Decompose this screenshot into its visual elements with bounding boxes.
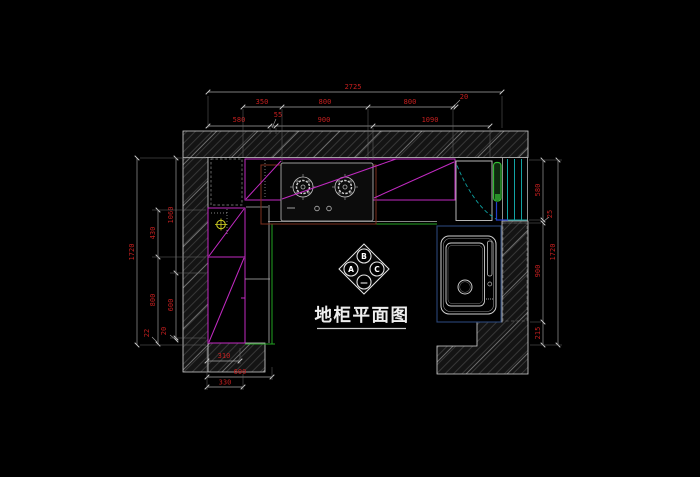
sink-rim-inner: [444, 239, 494, 312]
dim-text: 1720: [549, 244, 557, 261]
index-letter-right: C: [374, 265, 380, 274]
dim-text: 350: [256, 98, 269, 106]
dim-text: 580: [233, 116, 246, 124]
dim-text: 55: [274, 111, 282, 119]
window-right: [502, 158, 527, 222]
corner-cabinet: [456, 161, 508, 221]
dim-text: 20: [160, 327, 168, 335]
door-hinge-cap: [495, 194, 500, 200]
dim-text: 900: [534, 265, 542, 278]
index-letter-top: B: [361, 252, 367, 261]
dim-text: 600: [234, 368, 247, 376]
dim-text: 900: [318, 116, 331, 124]
cabinet-diagonal: [209, 209, 244, 256]
cad-canvas: B A C — 地柜平面图 2725 350 800 800 20 580 55: [0, 0, 700, 477]
sink-tap-hole: [488, 282, 492, 286]
cabinet-diagonal: [209, 258, 244, 342]
counter-diagonal: [246, 161, 281, 199]
gas-point-symbol: [215, 219, 227, 231]
dim-text: 22: [143, 329, 151, 337]
sink: [437, 226, 501, 322]
wall-cabinet-dashed: [211, 159, 242, 205]
index-letter-bottom: —: [360, 278, 368, 287]
index-letter-left: A: [348, 265, 354, 274]
dim-text: 1090: [422, 116, 439, 124]
door-swing-arc: [457, 166, 496, 220]
dim-text: 1720: [128, 244, 136, 261]
sink-basin-inner: [448, 246, 483, 304]
sink-drain: [458, 280, 472, 294]
dim-text: 20: [460, 93, 468, 101]
dim-text: 800: [149, 294, 157, 307]
dim-text: 25: [546, 210, 554, 218]
dim-text: 430: [149, 227, 157, 240]
dim-text: 2725: [345, 83, 362, 91]
sink-basin: [446, 243, 485, 306]
floorplan-drawing: B A C — 地柜平面图 2725 350 800 800 20 580 55: [0, 0, 700, 477]
dim-text: 215: [534, 327, 542, 340]
dim-text: 800: [404, 98, 417, 106]
title-text: 地柜平面图: [315, 305, 410, 326]
sink-drain-inner: [460, 282, 471, 293]
drawing-title: 地柜平面图: [315, 305, 410, 329]
dim-text: 1060: [167, 207, 175, 224]
elevation-index-symbol: B A C —: [339, 244, 389, 294]
dim-text: 310: [218, 352, 231, 360]
sink-drainer-slot: [488, 241, 493, 276]
dim-text: 580: [534, 184, 542, 197]
dim-leader: [152, 337, 157, 342]
dim-text: 330: [219, 379, 232, 387]
dim-text: 600: [167, 299, 175, 312]
counter-diagonal: [374, 162, 454, 198]
dim-text: 800: [319, 98, 332, 106]
